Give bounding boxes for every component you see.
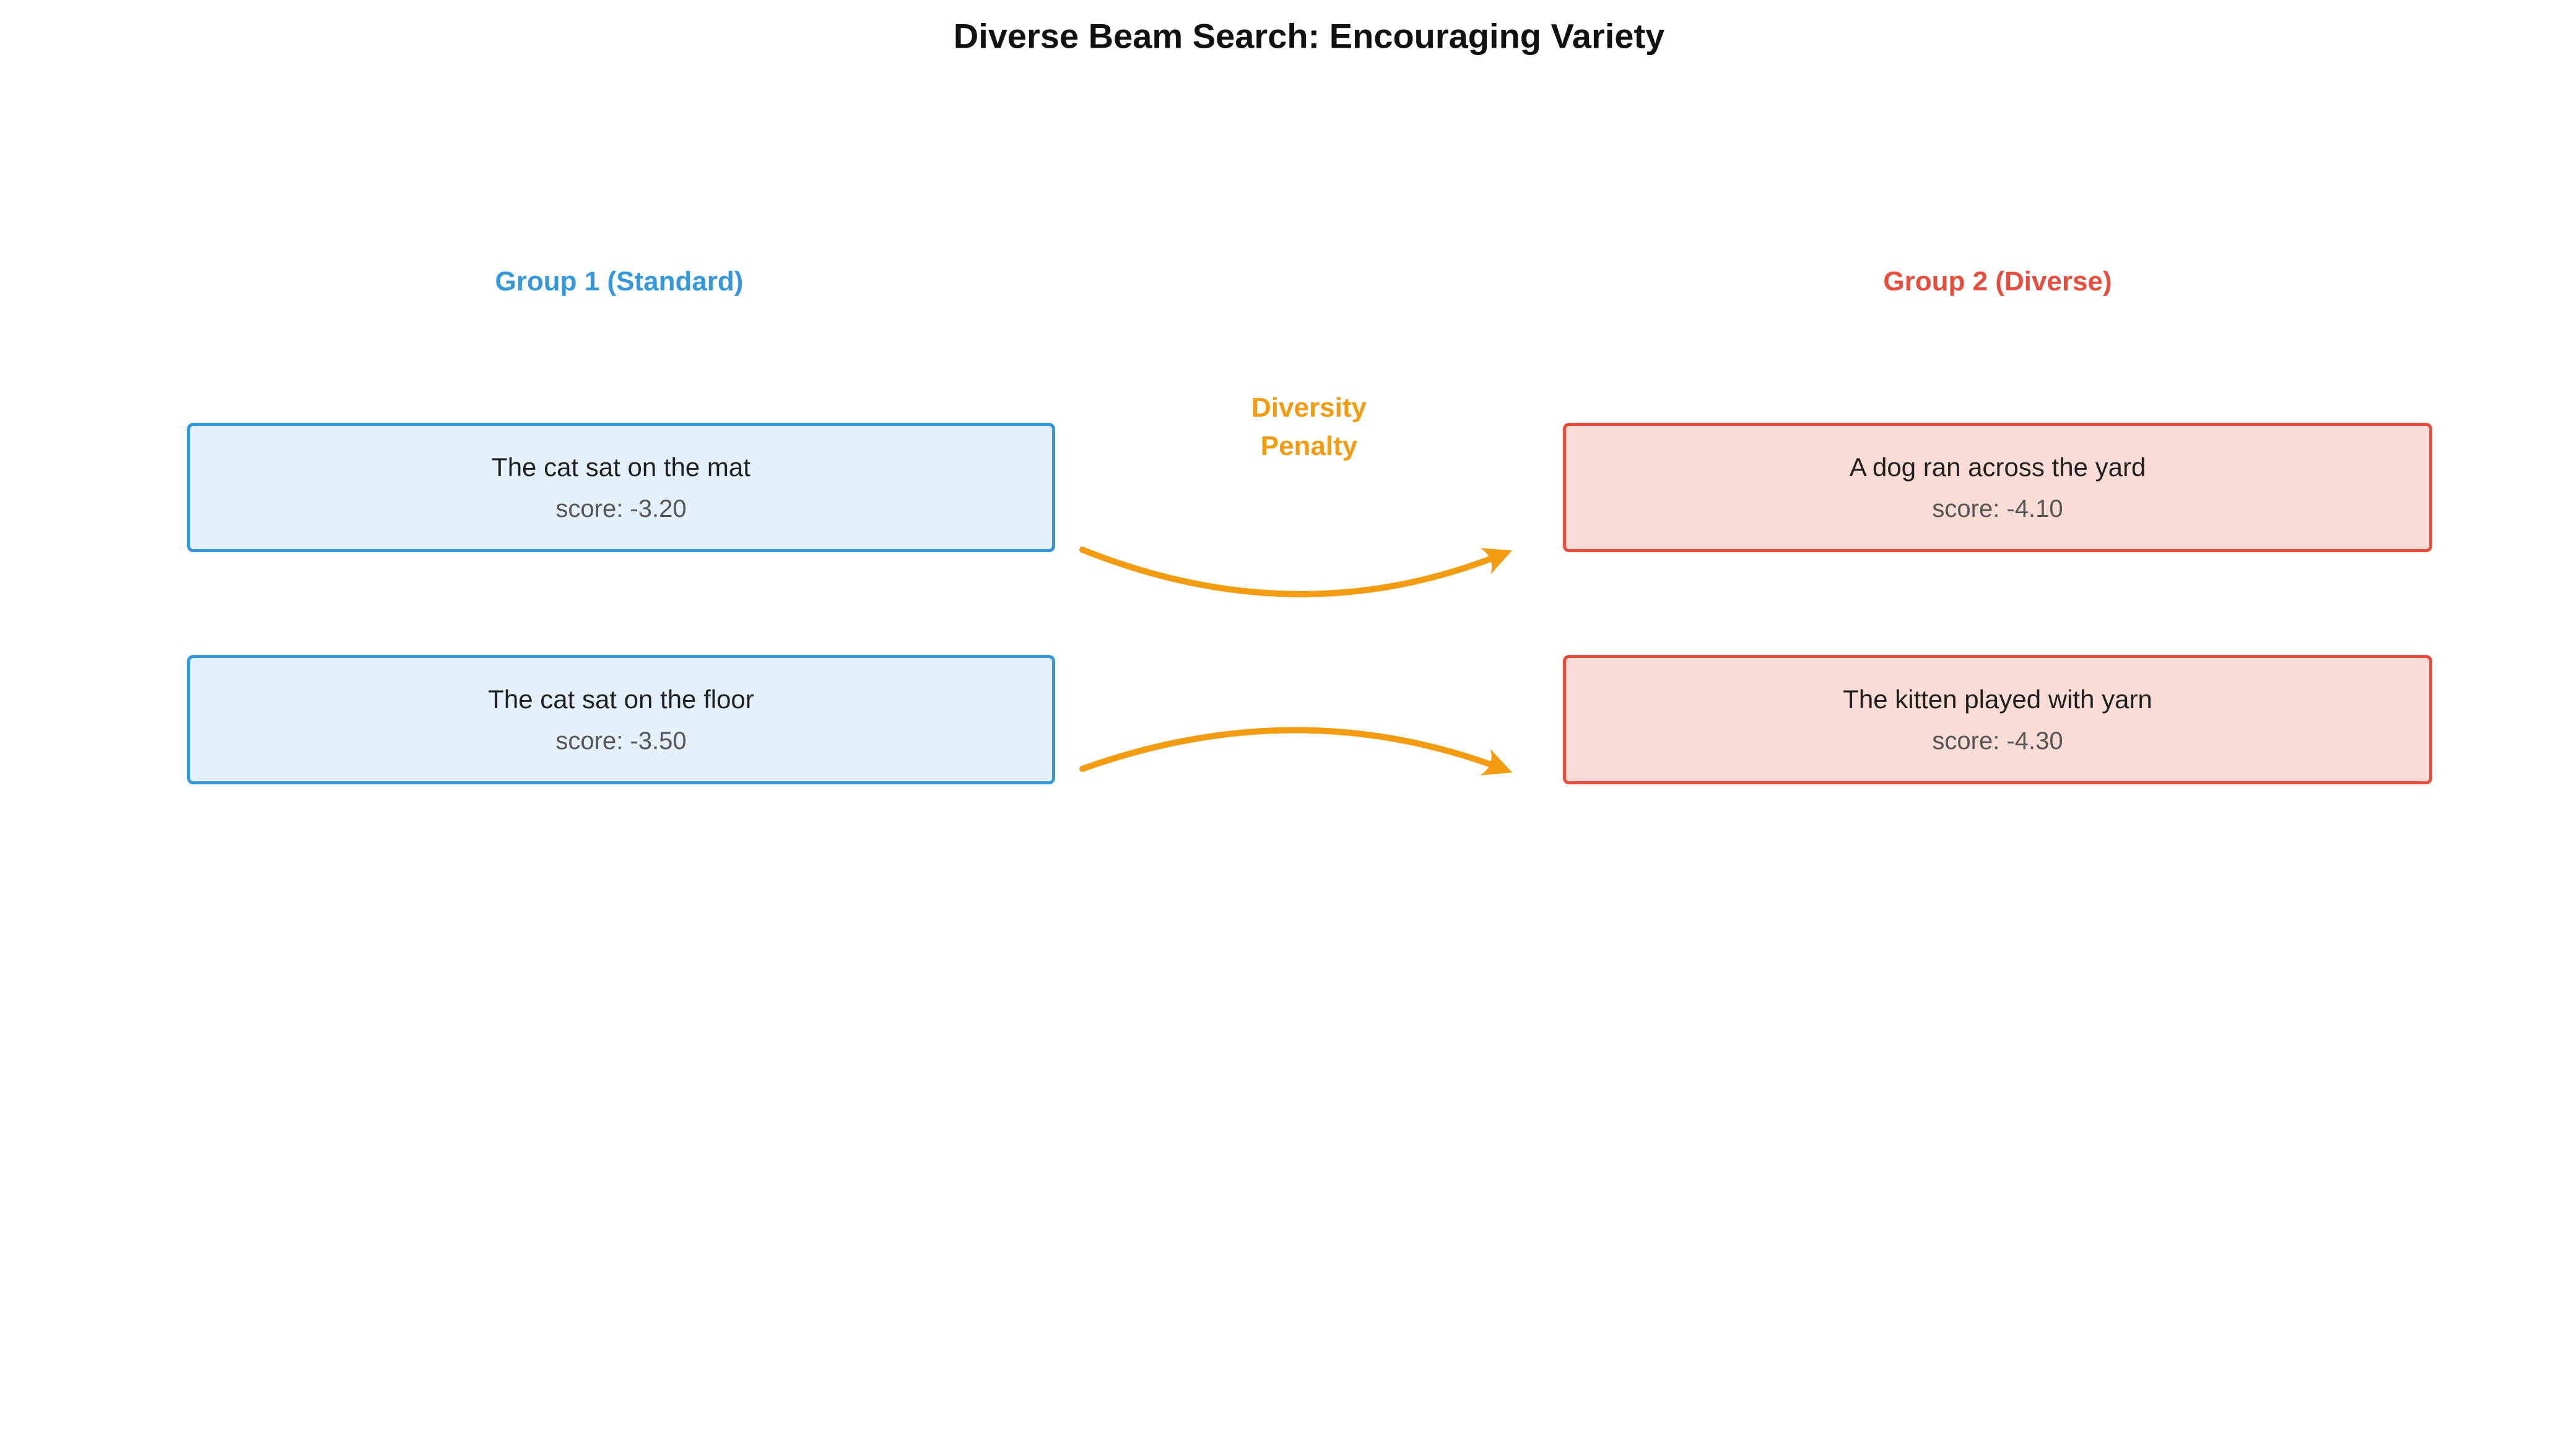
- diversity-penalty-line2: Penalty: [1251, 427, 1367, 466]
- group-2-label: Group 2 (Diverse): [1883, 266, 2112, 297]
- diversity-arrow-bottom: [1082, 730, 1506, 770]
- beam-text: The kitten played with yarn: [1843, 687, 2152, 713]
- group-1-label: Group 1 (Standard): [495, 266, 744, 297]
- beam-score: score: -3.20: [555, 496, 686, 521]
- beam-text: The cat sat on the floor: [488, 687, 754, 713]
- beam-box-group1-beam1: The cat sat on the mat score: -3.20: [187, 423, 1055, 552]
- diversity-arrow-top: [1082, 550, 1506, 594]
- beam-box-group2-beam1: A dog ran across the yard score: -4.10: [1563, 423, 2432, 552]
- beam-box-group1-beam2: The cat sat on the floor score: -3.50: [187, 655, 1055, 784]
- diversity-penalty-label: Diversity Penalty: [1251, 389, 1367, 466]
- beam-text: The cat sat on the mat: [492, 454, 750, 480]
- diversity-penalty-line1: Diversity: [1251, 389, 1367, 427]
- beam-score: score: -4.30: [1932, 729, 2063, 753]
- beam-box-group2-beam2: The kitten played with yarn score: -4.30: [1563, 655, 2432, 784]
- beam-score: score: -4.10: [1932, 496, 2063, 521]
- beam-score: score: -3.50: [555, 729, 686, 753]
- beam-text: A dog ran across the yard: [1850, 454, 2146, 480]
- diagram-title: Diverse Beam Search: Encouraging Variety: [954, 16, 1665, 56]
- diagram-canvas: Diverse Beam Search: Encouraging Variety…: [0, 0, 2571, 1456]
